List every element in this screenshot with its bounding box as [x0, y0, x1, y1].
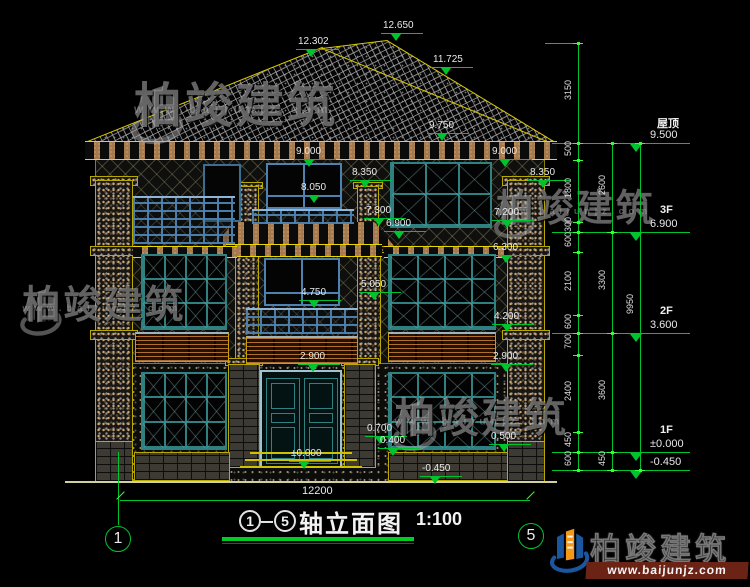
elevation-label: 12.302 [298, 36, 329, 47]
elevation-marker-line [299, 300, 341, 301]
watermark-url: www.baijunjz.com [22, 302, 182, 313]
elevation-label: 2.900 [493, 351, 518, 362]
elevation-label: 8.350 [530, 167, 555, 178]
elevation-marker-triangle [306, 50, 316, 57]
elevation-label: ±0.000 [291, 448, 322, 459]
elevation-marker-triangle [499, 445, 509, 452]
elevation-label: 9.000 [492, 146, 517, 157]
dim-text: 3300 [598, 270, 607, 290]
elevation-label: 9.000 [296, 146, 321, 157]
elevation-marker-triangle [308, 365, 318, 372]
elevation-marker-triangle [369, 293, 379, 300]
elevation-marker-line [299, 195, 341, 196]
elevation-marker-line [296, 49, 338, 50]
elevation-marker-triangle [430, 477, 440, 484]
elevation-label: 7.200 [494, 207, 519, 218]
dim-tick-dot [577, 142, 580, 145]
elevation-marker-triangle [501, 256, 511, 263]
elevation-marker-line [289, 461, 331, 462]
level-triangle [630, 453, 642, 461]
level-triangle [630, 144, 642, 152]
elevation-marker-line [378, 448, 420, 449]
elevation-marker-line [384, 231, 426, 232]
elevation-marker-line [431, 67, 473, 68]
bottom-dim-text: 12200 [302, 486, 333, 497]
dim-text: 2600 [598, 175, 607, 195]
dim-text: 450 [598, 451, 607, 466]
elevation-label: 6.300 [493, 242, 518, 253]
level-value: 6.900 [650, 218, 678, 230]
dim-text: 600 [564, 232, 573, 247]
elevation-marker-triangle [501, 365, 511, 372]
brand-building-icon [546, 520, 590, 580]
elevation-marker-triangle [360, 181, 370, 188]
elevation-marker-line [492, 220, 534, 221]
level-triangle [630, 233, 642, 241]
dim-text: 600 [564, 314, 573, 329]
watermark-url: www.baijunjz.com [496, 206, 652, 217]
dim-text: 700 [564, 334, 573, 349]
elevation-label: 11.725 [433, 54, 463, 65]
level-triangle [630, 471, 642, 479]
dim-tick-dot [577, 221, 580, 224]
watermark: 柏竣建筑 www.baijunjz.com [126, 82, 184, 146]
dim-text: 500 [564, 141, 573, 156]
drawing-scale: 1:100 [416, 509, 462, 530]
title-dash [261, 521, 273, 523]
elevation-label: 0.700 [367, 423, 392, 434]
dim-tick-dot [577, 451, 580, 454]
elevation-marker-triangle [437, 134, 447, 141]
elevation-marker-line [427, 133, 469, 134]
level-triangle [630, 334, 642, 342]
dim-tick-dot [577, 354, 580, 357]
dim-tick-dot [611, 231, 614, 234]
brand-logo-block: 柏竣建筑 www.baijunjz.com [544, 518, 750, 587]
elevation-marker-line [491, 255, 533, 256]
title-axis-start-bubble: 1 [239, 510, 261, 532]
dim-text: 3150 [564, 80, 573, 100]
dim-text: 2400 [564, 381, 573, 401]
elevation-marker-line [489, 444, 531, 445]
dim-chain-line [578, 43, 579, 143]
title-axis-end-bubble: 5 [274, 510, 296, 532]
dim-chain-line [612, 143, 613, 470]
elevation-marker-triangle [394, 232, 404, 239]
dim-tick-dot [577, 231, 580, 234]
elevation-marker-line [381, 33, 423, 34]
elevation-marker-triangle [374, 219, 384, 226]
axis-line-1 [118, 452, 119, 525]
cad-elevation-drawing: 12.30212.65011.7259.7509.0009.0008.3508.… [0, 0, 750, 587]
dim-text: 600 [564, 451, 573, 466]
dim-tick-dot [611, 332, 614, 335]
elevation-marker-triangle [502, 325, 512, 332]
elevation-marker-triangle [391, 34, 401, 41]
dim-tick-dot [577, 431, 580, 434]
title-underline-thin [222, 543, 414, 544]
dim-text: 2100 [564, 271, 573, 291]
elevation-marker-triangle [309, 196, 319, 203]
dim-text: 450 [564, 432, 573, 447]
elevation-marker-line [359, 292, 401, 293]
dim-tick-dot [639, 469, 642, 472]
bottom-dim-line [120, 500, 530, 501]
elevation-label: 8.350 [352, 167, 377, 178]
elevation-marker-triangle [304, 160, 314, 167]
elevation-marker-triangle [309, 301, 319, 308]
brand-url: www.baijunjz.com [585, 562, 748, 579]
elevation-marker-line [491, 364, 533, 365]
elevation-marker-triangle [388, 449, 398, 456]
elevation-label: 9.750 [429, 120, 454, 131]
dim-tick-dot [611, 451, 614, 454]
dim-tick-dot [577, 42, 580, 45]
elevation-marker-triangle [299, 462, 309, 469]
dim-tick-dot [611, 142, 614, 145]
dim-tick-dot [611, 469, 614, 472]
elevation-marker-line [420, 476, 462, 477]
elevation-label: -0.450 [422, 463, 450, 474]
dim-text: 3600 [598, 380, 607, 400]
elevation-label: 4.200 [494, 311, 519, 322]
dim-tick-dot [577, 332, 580, 335]
title-underline [222, 537, 414, 541]
dim-tick-dot [577, 469, 580, 472]
dim-tick-dot [577, 159, 580, 162]
elevation-marker-line [294, 159, 336, 160]
elevation-label: 5.050 [361, 279, 386, 290]
axis-bubble: 1 [105, 526, 131, 552]
ground-line [65, 481, 557, 483]
elevation-label: 8.050 [301, 182, 326, 193]
elevation-label: 6.900 [386, 218, 411, 229]
elevation-marker-triangle [538, 181, 548, 188]
elevation-label: 2.900 [300, 351, 325, 362]
level-name: 3F [660, 204, 673, 216]
dim-chain-line [640, 143, 641, 470]
elevation-marker-triangle [502, 221, 512, 228]
drawing-title: 轴立面图 [299, 504, 403, 539]
elevation-marker-line [490, 159, 532, 160]
dim-tick-dot [577, 314, 580, 317]
level-name: 1F [660, 424, 673, 436]
elevation-label: 4.750 [301, 287, 326, 298]
watermark: 柏竣建筑 www.baijunjz.com [16, 286, 62, 337]
level-value: -0.450 [650, 456, 681, 468]
elevation-label: 12.650 [383, 20, 414, 31]
elevation-label: 0.500 [491, 431, 516, 442]
elevation-label: 7.300 [366, 205, 391, 216]
dim-chain-line [578, 143, 579, 470]
dim-text: 9950 [626, 294, 635, 314]
dim-text: 300 [564, 217, 573, 232]
elevation-label: 0.400 [380, 435, 405, 446]
level-value: 9.500 [650, 129, 678, 141]
elevation-marker-triangle [441, 68, 451, 75]
watermark-url: www.baijunjz.com [134, 102, 334, 116]
level-value: ±0.000 [650, 438, 684, 450]
axis-bubble: 5 [518, 523, 544, 549]
elevation-marker-line [298, 364, 340, 365]
elevation-marker-line [350, 180, 392, 181]
dim-tick-dot [577, 251, 580, 254]
elevation-marker-line [492, 324, 534, 325]
level-value: 3.600 [650, 319, 678, 331]
level-name: 2F [660, 305, 673, 317]
dim-tick-dot [639, 142, 642, 145]
watermark-url: www.baijunjz.com [395, 415, 565, 427]
dim-text: 1800 [564, 178, 573, 198]
elevation-marker-triangle [500, 160, 510, 167]
